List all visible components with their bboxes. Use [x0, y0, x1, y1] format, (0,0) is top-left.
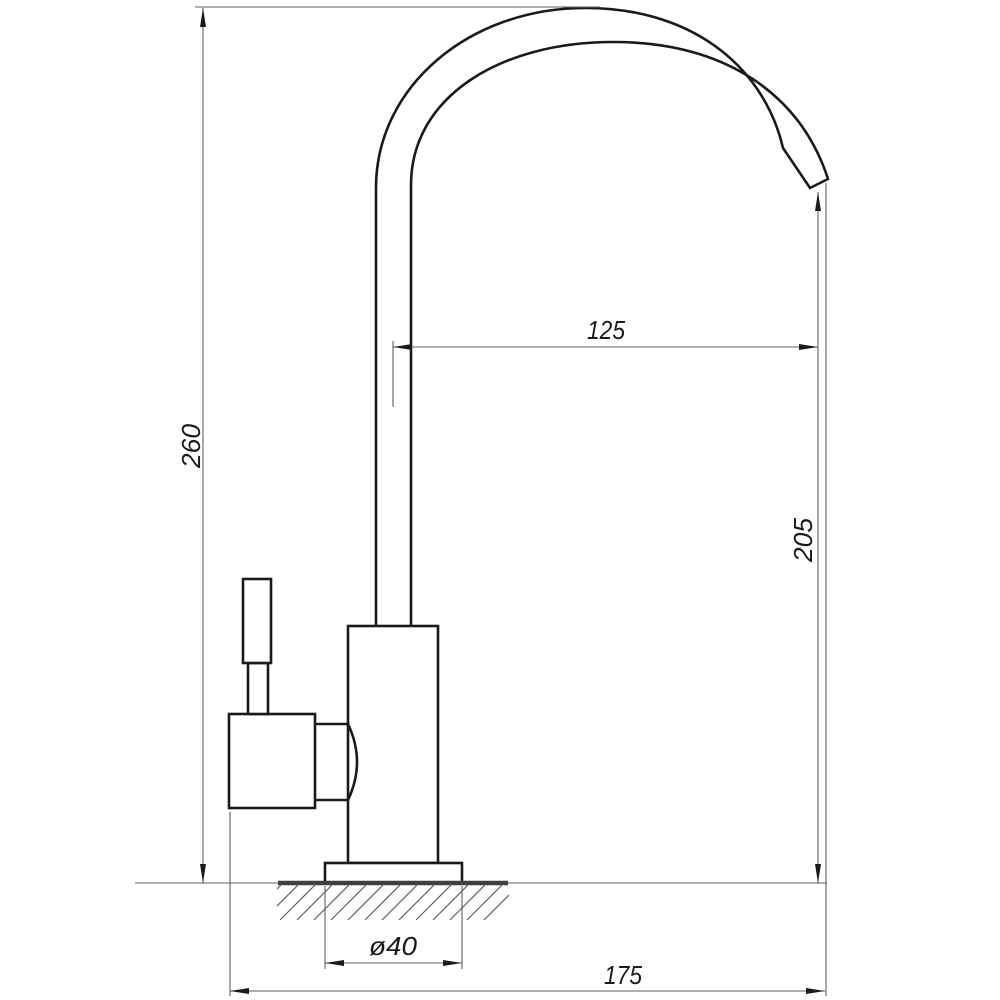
- dimension-base-diameter: ø40: [325, 886, 462, 969]
- faucet-outline: [229, 8, 828, 883]
- total-depth-arrow-right: [806, 988, 825, 994]
- drawing-svg: 260 125 205 ø40: [0, 0, 1000, 1000]
- total-height-label: 260: [176, 423, 206, 469]
- total-height-arrow-top: [200, 8, 206, 27]
- base-diameter-arrow-right: [443, 960, 462, 966]
- faucet-technical-drawing: 260 125 205 ø40: [0, 0, 1000, 1000]
- outlet-height-arrow-bottom: [815, 864, 821, 883]
- base-flange-outline: [325, 863, 462, 883]
- handle-grip-outline: [243, 579, 271, 663]
- dimension-total-depth: 175: [230, 812, 825, 996]
- surface-hatching: [246, 884, 520, 920]
- mounting-surface: [135, 883, 827, 920]
- base-diameter-label: ø40: [369, 931, 418, 961]
- outlet-height-label: 205: [788, 517, 818, 563]
- spout-reach-arrow-right: [799, 344, 818, 350]
- total-depth-label: 175: [604, 960, 642, 990]
- faucet-body-outline: [348, 626, 438, 863]
- handle-stem-outline: [248, 663, 268, 714]
- base-diameter-arrow-left: [325, 960, 344, 966]
- dimension-outlet-height: 205: [788, 183, 826, 996]
- outlet-height-arrow-top: [815, 192, 821, 211]
- dimension-spout-reach: 125: [393, 315, 818, 407]
- spout-reach-label: 125: [587, 315, 625, 345]
- valve-housing-outline: [229, 714, 315, 808]
- total-depth-arrow-left: [230, 988, 249, 994]
- total-height-arrow-bottom: [200, 864, 206, 883]
